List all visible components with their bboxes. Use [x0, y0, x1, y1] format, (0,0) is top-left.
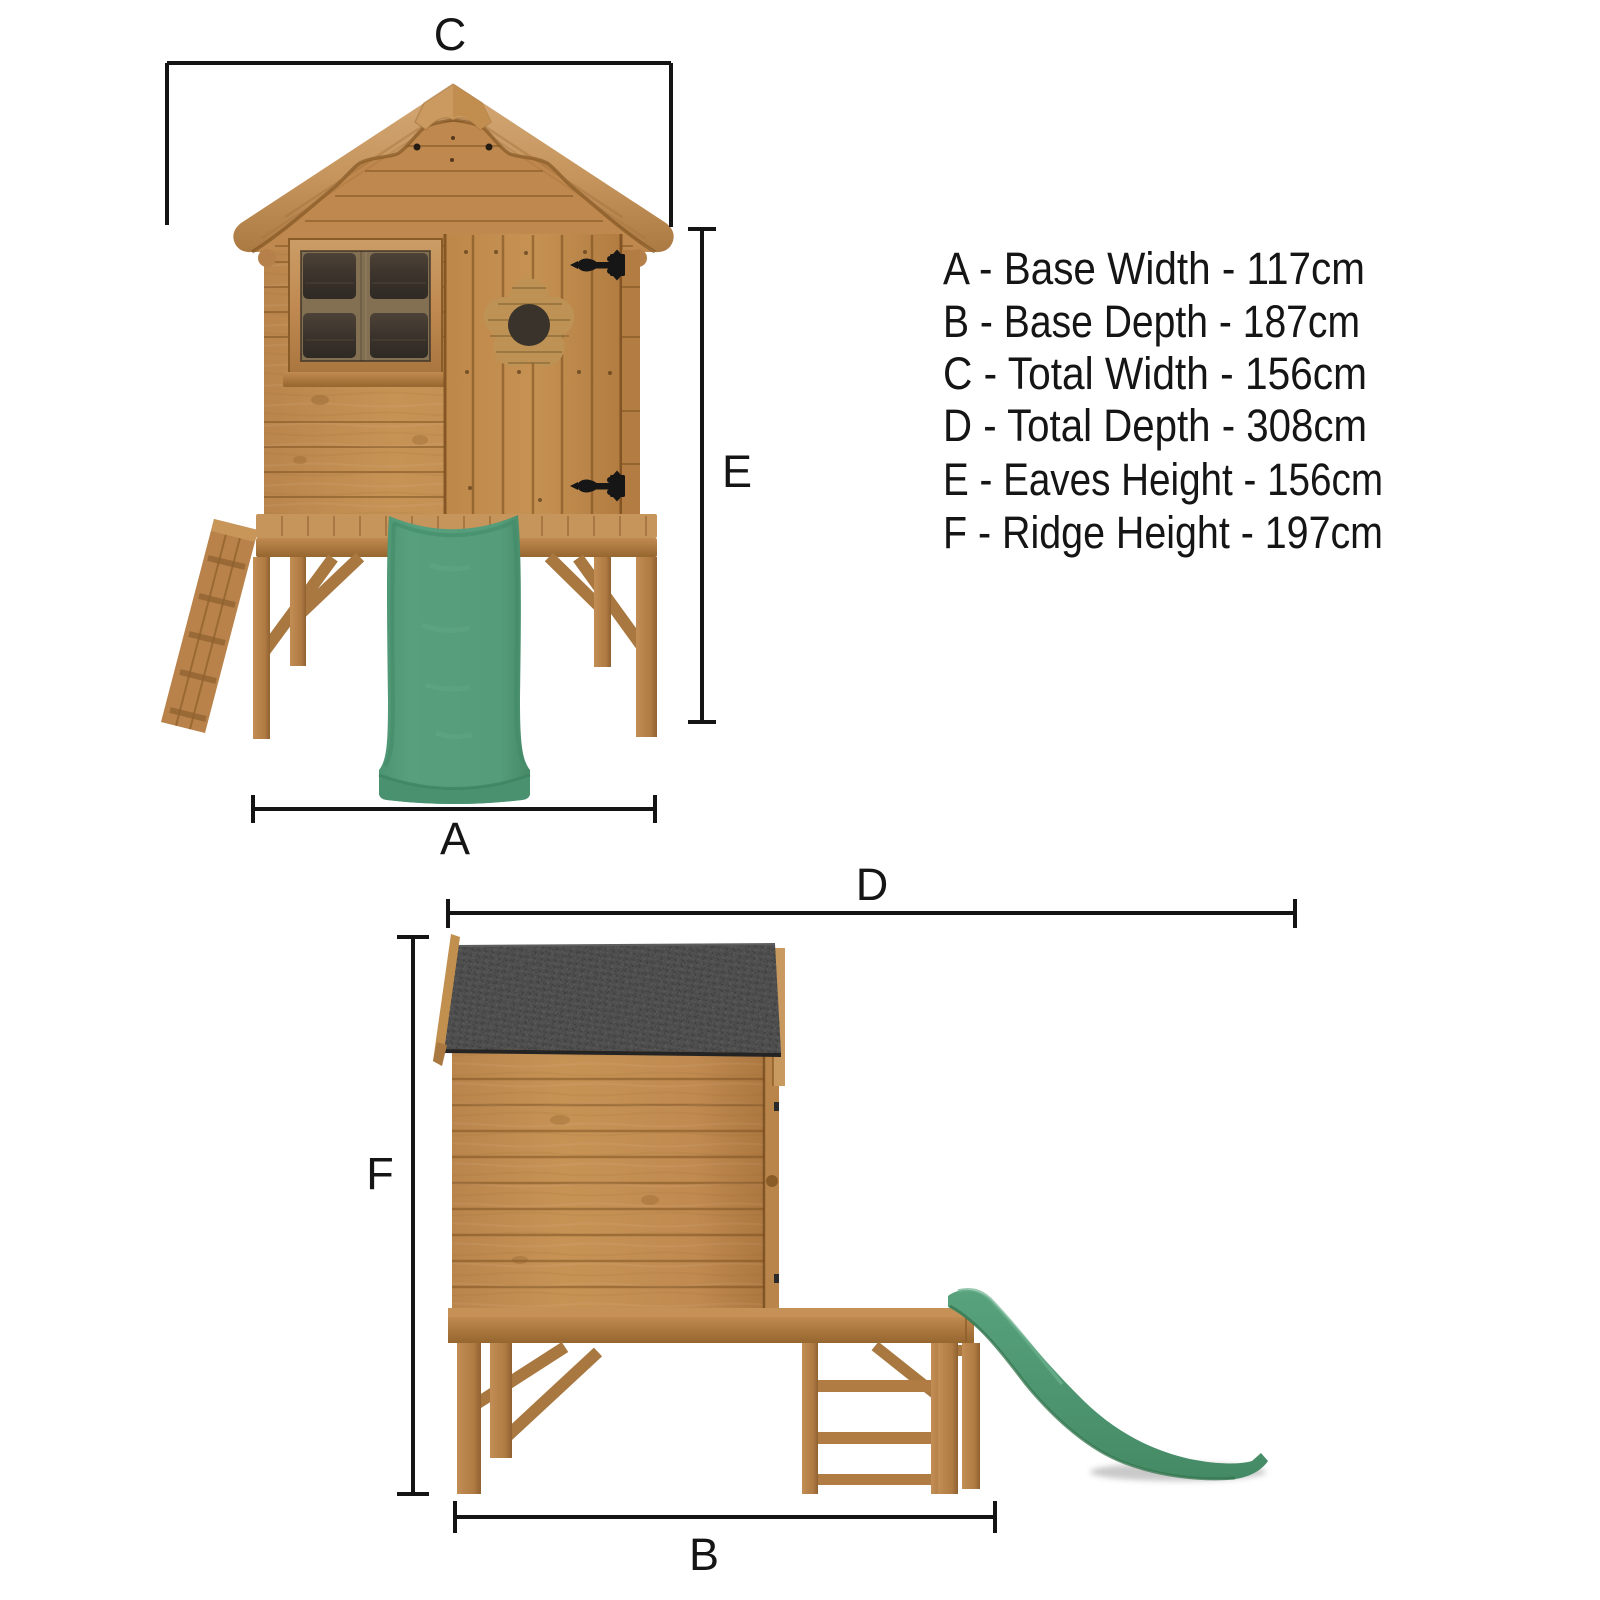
- svg-text:B: B: [689, 1529, 719, 1580]
- svg-text:E: E: [722, 446, 752, 497]
- svg-text:C: C: [434, 9, 467, 60]
- svg-text:D: D: [856, 859, 889, 910]
- svg-text:F - Ridge Height - 197cm: F - Ridge Height - 197cm: [943, 507, 1383, 558]
- svg-text:E - Eaves Height - 156cm: E - Eaves Height - 156cm: [943, 454, 1383, 505]
- svg-text:B - Base Depth - 187cm: B - Base Depth - 187cm: [943, 296, 1360, 347]
- svg-text:D - Total Depth - 308cm: D - Total Depth - 308cm: [943, 400, 1367, 451]
- svg-text:C - Total Width - 156cm: C - Total Width - 156cm: [943, 348, 1367, 399]
- svg-text:A - Base Width - 117cm: A - Base Width - 117cm: [943, 243, 1365, 294]
- svg-text:F: F: [366, 1148, 394, 1199]
- svg-text:A: A: [440, 813, 470, 864]
